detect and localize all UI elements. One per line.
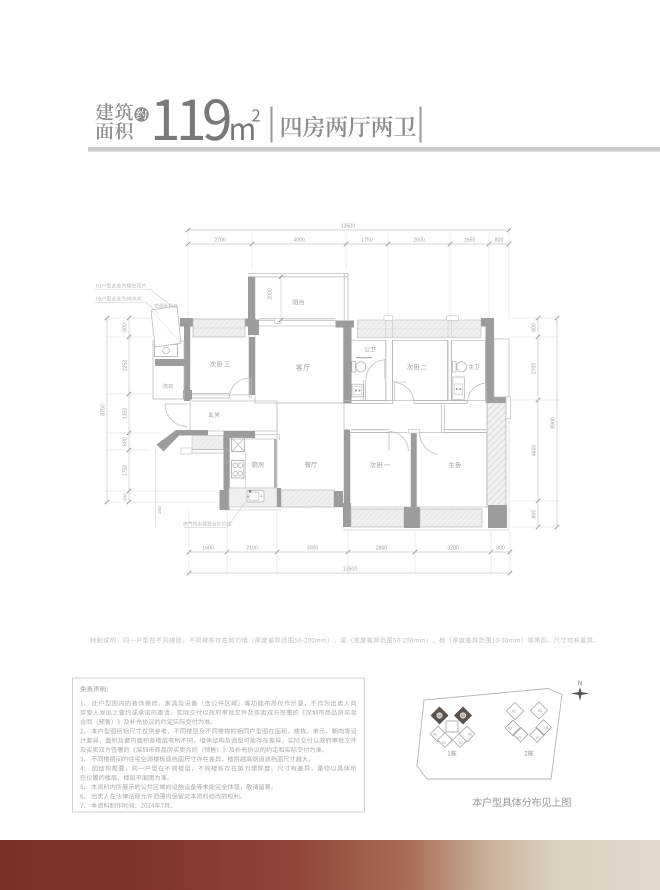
svg-text:2700: 2700: [214, 238, 226, 244]
svg-text:13500: 13500: [341, 224, 356, 230]
svg-text:800: 800: [495, 238, 504, 244]
svg-text:1600: 1600: [202, 546, 214, 552]
svg-text:1350: 1350: [123, 408, 129, 420]
svg-text:200: 200: [157, 506, 162, 514]
svg-text:600: 600: [123, 437, 129, 446]
svg-text:13500: 13500: [343, 567, 358, 573]
svg-text:8750: 8750: [101, 404, 107, 416]
svg-text:1650: 1650: [464, 238, 476, 244]
svg-text:1750: 1750: [361, 238, 373, 244]
svg-text:3000: 3000: [307, 546, 319, 552]
svg-text:4000: 4000: [293, 238, 305, 244]
svg-text:2700: 2700: [532, 363, 538, 375]
svg-text:2600: 2600: [413, 238, 425, 244]
svg-text:800: 800: [532, 323, 538, 332]
svg-text:800: 800: [496, 546, 505, 552]
svg-text:8900: 8900: [551, 417, 557, 429]
svg-text:N: N: [578, 681, 582, 687]
svg-text:800: 800: [123, 323, 129, 332]
svg-text:2800: 2800: [376, 546, 388, 552]
svg-text:800: 800: [532, 510, 538, 519]
svg-text:2100: 2100: [246, 546, 258, 552]
svg-text:3200: 3200: [447, 546, 459, 552]
svg-text:400: 400: [123, 493, 128, 501]
svg-text:2000: 2000: [268, 288, 274, 300]
svg-text:2250: 2250: [123, 360, 129, 372]
svg-text:1750: 1750: [123, 465, 129, 477]
svg-text:4600: 4600: [532, 445, 538, 457]
